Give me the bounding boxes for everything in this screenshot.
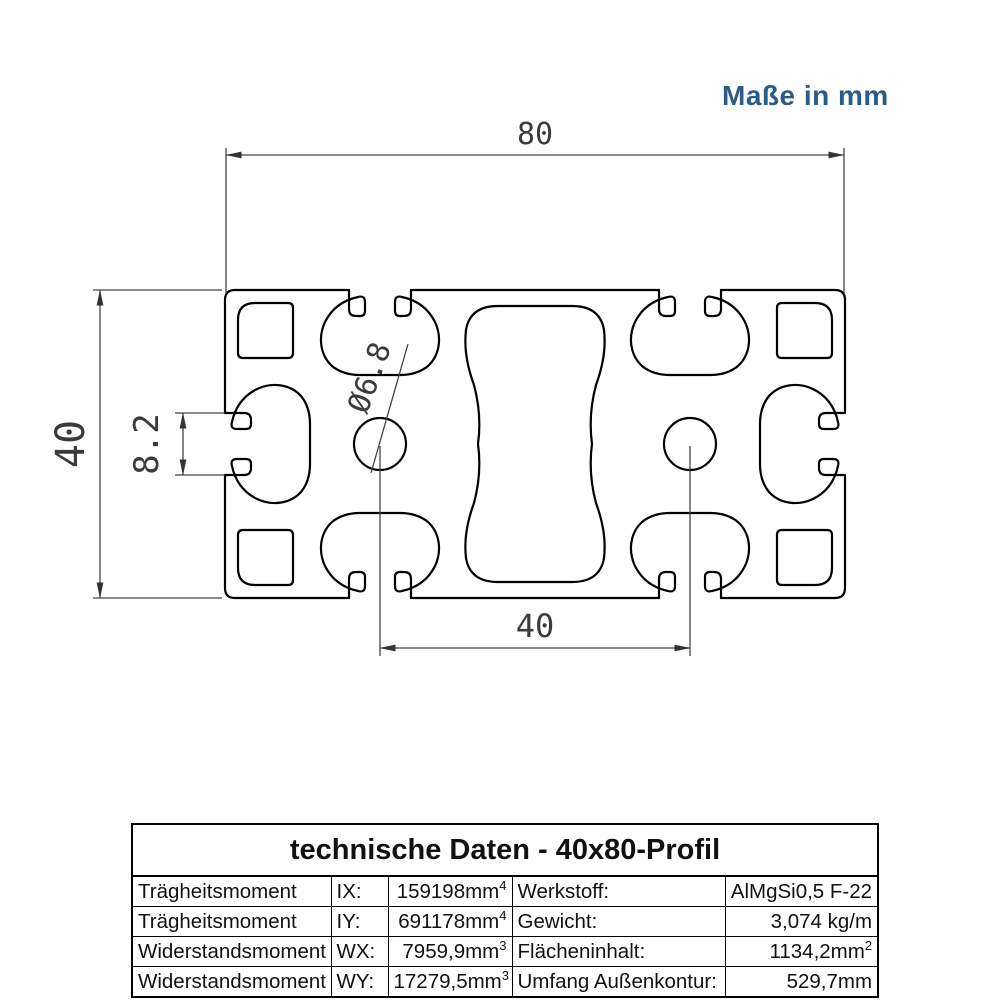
property-value: AlMgSi0,5 F-22 [725, 876, 878, 907]
dim-label-slot-width: 8.2 [127, 413, 167, 474]
table-row: Widerstandsmoment WX: 7959,9mm3 Flächeni… [132, 937, 878, 967]
technical-data-table: technische Daten - 40x80-Profil Trägheit… [131, 823, 879, 998]
property-value: 17279,5mm3 [388, 967, 512, 998]
property-name: Widerstandsmoment [132, 937, 331, 967]
property-name: Flächeninhalt: [512, 937, 725, 967]
property-value: 691178mm4 [388, 907, 512, 937]
table-row: Trägheitsmoment IX: 159198mm4 Werkstoff:… [132, 876, 878, 907]
property-symbol: IX: [331, 876, 388, 907]
property-symbol: WY: [331, 967, 388, 998]
property-name: Werkstoff: [512, 876, 725, 907]
table-row: Widerstandsmoment WY: 17279,5mm3 Umfang … [132, 967, 878, 998]
units-note: Maße in mm [722, 80, 889, 112]
property-name: Gewicht: [512, 907, 725, 937]
dim-label-hole-spacing: 40 [516, 607, 555, 645]
property-value: 7959,9mm3 [388, 937, 512, 967]
property-symbol: IY: [331, 907, 388, 937]
t-slot-left [225, 385, 310, 503]
property-name: Widerstandsmoment [132, 967, 331, 998]
table-row: Trägheitsmoment IY: 691178mm4 Gewicht: 3… [132, 907, 878, 937]
corner-channel-bottom-left [238, 530, 293, 585]
dim-label-overall-width: 80 [517, 117, 553, 152]
property-symbol: WX: [331, 937, 388, 967]
table-title: technische Daten - 40x80-Profil [132, 824, 878, 876]
corner-channel-top-right [777, 303, 832, 358]
property-value: 529,7mm [725, 967, 878, 998]
property-name: Trägheitsmoment [132, 876, 331, 907]
technical-drawing-page: Maße in mm [0, 0, 1000, 1000]
t-slot-top-right [631, 290, 749, 375]
property-value: 1134,2mm2 [725, 937, 878, 967]
property-value: 159198mm4 [388, 876, 512, 907]
dimension-lines [93, 148, 844, 656]
profile-outline [225, 290, 845, 598]
corner-channel-bottom-right [777, 530, 832, 585]
property-name: Trägheitsmoment [132, 907, 331, 937]
table-header-row: technische Daten - 40x80-Profil [132, 824, 878, 876]
t-slot-right [760, 385, 845, 503]
dim-label-overall-height: 40 [48, 420, 94, 468]
central-cavity [465, 306, 604, 582]
profile-outer-edges [225, 290, 845, 598]
property-name: Umfang Außenkontur: [512, 967, 725, 998]
property-value: 3,074 kg/m [725, 907, 878, 937]
corner-channel-top-left [238, 303, 293, 358]
